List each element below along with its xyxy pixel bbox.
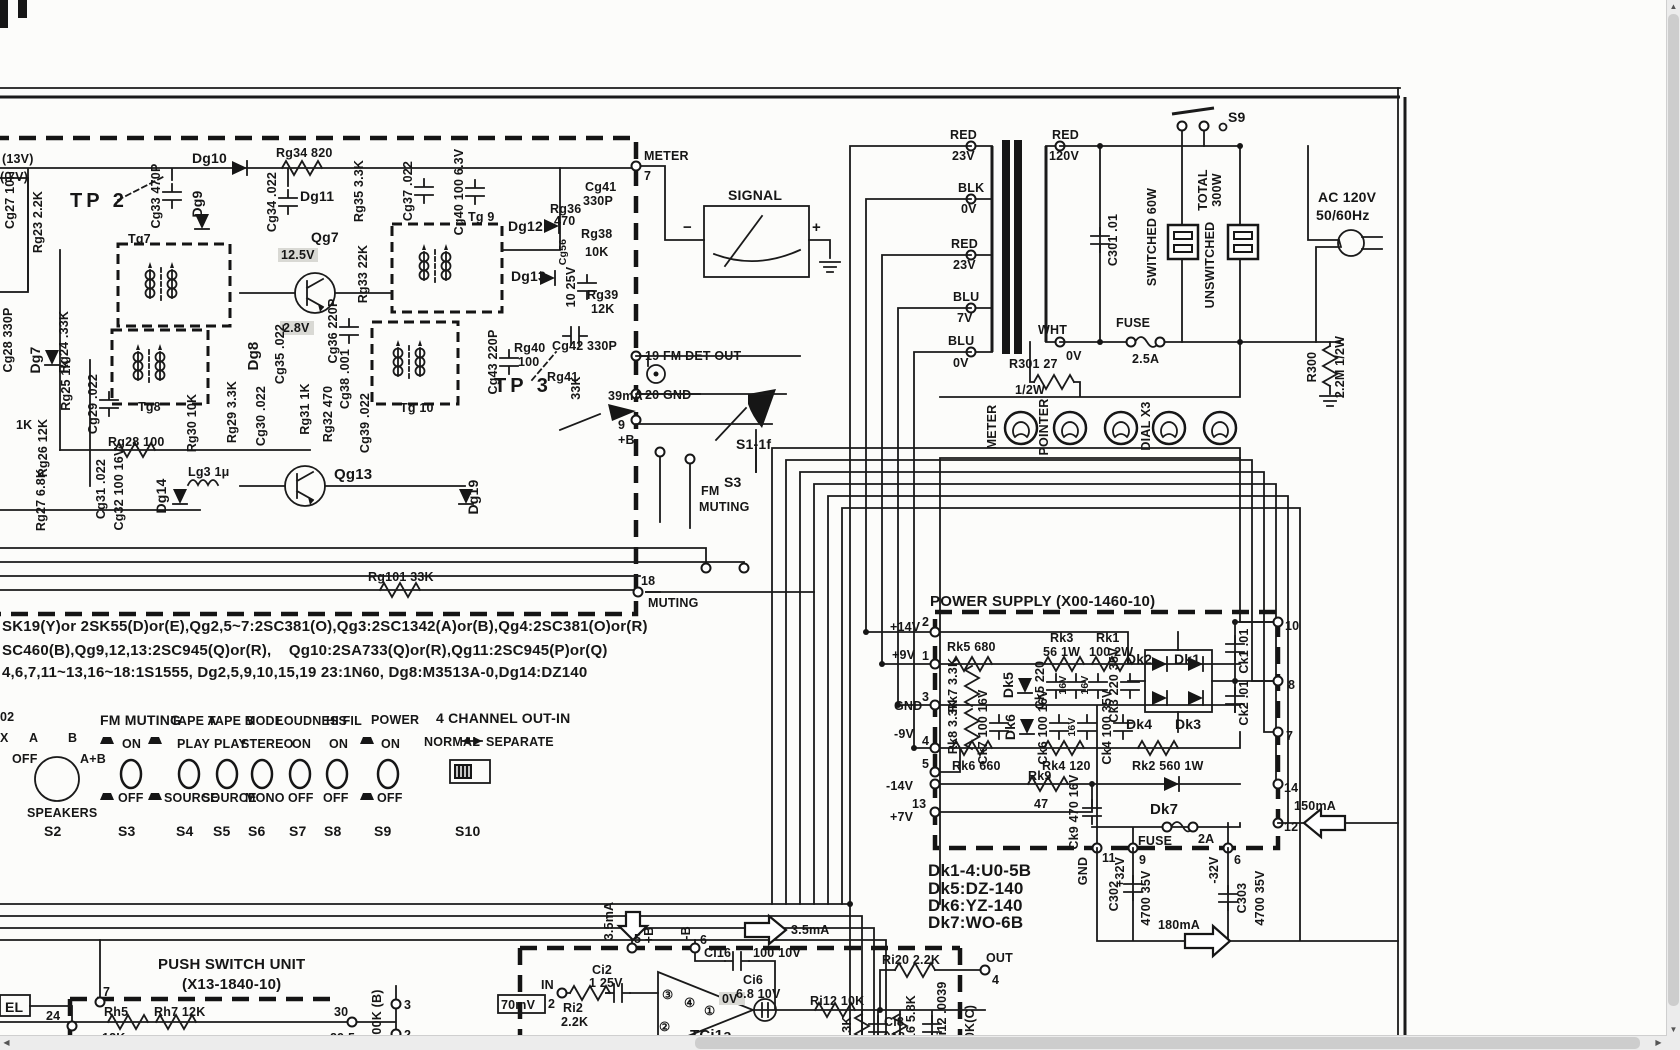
lbl-minus-b: -B (679, 926, 693, 940)
knob-hifil[interactable] (327, 760, 347, 788)
knob-power[interactable] (378, 760, 398, 788)
lbl-rk1a: Rk1 (1096, 631, 1120, 645)
lamp-dial2 (1153, 412, 1185, 444)
lbl-cg29: Cg29 .022 (86, 374, 100, 434)
lbl-oppin2: ② (659, 1020, 670, 1034)
lbl-ab: A+B (80, 752, 106, 766)
lbl-el: EL (5, 999, 24, 1015)
lbl-pin8: 8 (1288, 678, 1295, 692)
psu-pin5 (931, 768, 940, 777)
lbl-7v: 7V (957, 311, 973, 325)
lbl-push-sub: (X13-1840-10) (182, 976, 281, 993)
lbl-pin7: 7 (644, 169, 651, 183)
lbl-cg40: Cg40 100 6.3V (452, 148, 466, 235)
lbl-s9: S9 (1228, 109, 1246, 125)
lbl-p9v: +9V (892, 648, 916, 662)
power-supply: POWER SUPPLY (X00-1460-10) +14V 2 +9V 1 … (886, 593, 1299, 887)
lbl-p7v: +7V (890, 810, 914, 824)
transistor-qg13 (285, 466, 325, 506)
parts-line3: 4,6,7,11~13,16~18:1S1555, Dg2,5,9,10,15,… (2, 664, 587, 681)
lbl-tapea-play: PLAY (177, 737, 210, 751)
terminal (686, 455, 695, 464)
vertical-scrollbar[interactable]: ▲ ▼ (1666, 0, 1680, 1050)
lbl-signal: SIGNAL (728, 187, 782, 203)
lbl-ck9: Ck9 470 16V (1067, 774, 1081, 850)
diode-dk5 (1018, 678, 1032, 693)
ac-plug-icon (1338, 230, 1382, 256)
capacitor-symbol (466, 180, 484, 204)
lbl-s5: S5 (213, 823, 231, 839)
lbl-cg38: Cg38 .001 (338, 349, 352, 409)
lbl-meter-minus: − (683, 219, 692, 236)
button-marker (148, 793, 162, 800)
lbl-rh7: Rh7 12K (154, 1005, 205, 1019)
lbl-s3-muting: MUTING (699, 500, 750, 514)
knob-tapea[interactable] (179, 760, 199, 788)
lamp-meter (1005, 412, 1037, 444)
lbl-300w: 300W (1210, 173, 1224, 206)
coax-jack-fm-det (647, 365, 665, 383)
lbl-pin4: 4 (922, 734, 929, 748)
lbl-cg56: Cg56 (557, 239, 569, 265)
lbl-ri20: Ri20 2.2K (882, 953, 940, 967)
push-pin3 (392, 1000, 401, 1009)
lbl-hifil: HI FIL (326, 714, 362, 728)
lbl-pin9: 9 (1139, 853, 1146, 867)
lbl-n9v: -9V (894, 727, 915, 741)
lbl-n14v: -14V (886, 779, 914, 793)
lbl-pin3: 3 (922, 690, 929, 704)
lbl-s2: S2 (44, 823, 62, 839)
lbl-loud-on: ON (292, 737, 311, 751)
lbl-power-on: ON (381, 737, 400, 751)
lbl-pin3b: 3 (404, 998, 411, 1012)
lbl-unswitched: UNSWITCHED (1203, 222, 1217, 309)
lbl-tg8: Tg8 (138, 400, 161, 414)
lbl-plus-b: +B (618, 433, 635, 447)
lbl-lamp-dial: DIAL X3 (1139, 401, 1153, 450)
lbl-dg19: Dg19 (465, 479, 481, 514)
lbl-s6: S6 (248, 823, 266, 839)
lbl-r300v: 2.2M 1/2W (1333, 336, 1347, 398)
lbl-13v: (13V) (2, 152, 34, 166)
tone-pin-out (981, 966, 990, 975)
switch-s9 (1172, 108, 1227, 131)
lbl-s8: S8 (324, 823, 342, 839)
lbl-tp3: TP 3 (494, 375, 552, 397)
lbl-cg41b: 330P (583, 194, 613, 208)
lbl-dg13: Dg13 (511, 268, 546, 284)
lbl-s3-fm: FM (701, 484, 719, 498)
lbl-gnd: GND (894, 699, 922, 713)
lbl-dg7: Dg7 (27, 346, 43, 373)
push-switch-unit: PUSH SWITCH UNIT (X13-1840-10) EL 24 7 R… (0, 940, 411, 1050)
lbl-rg32: Rg32 470 (321, 386, 335, 443)
vertical-scroll-thumb[interactable] (1668, 14, 1679, 1006)
lbl-cg43: Cg43 220P (486, 329, 500, 394)
lbl-c303v: 4700 35V (1253, 870, 1267, 926)
lbl-pin18: 18 (641, 574, 655, 588)
lbl-rk9a: Rk9 (1028, 769, 1052, 783)
lbl-switched-60w: SWITCHED 60W (1145, 188, 1159, 286)
if-unit-labels: (13V) (.7V) TP 2 TP 3 Cg27 10P Rg23 2.2K… (0, 146, 771, 610)
lbl-rg26: Rg26 12K (36, 419, 50, 478)
lbl-meter-plus: + (812, 219, 821, 236)
lbl-180ma: 180mA (1158, 918, 1200, 932)
lbl-ck4: Ck4 100 35V (1100, 689, 1114, 765)
diode-icon (232, 161, 247, 175)
lbl-cg27: Cg27 10P (3, 171, 17, 229)
diode-dk6 (1020, 719, 1034, 734)
lbl-70mv: 70mV (501, 998, 536, 1012)
lbl-dg9: Dg9 (189, 190, 205, 217)
lbl-s10: S10 (455, 823, 481, 839)
lbl-r301: R301 27 (1009, 357, 1058, 371)
if-transformer-coil (146, 262, 177, 300)
coil-lg3 (188, 480, 218, 485)
lbl-s3b: S3 (118, 823, 136, 839)
lbl-dk5: Dk5 (1000, 672, 1016, 698)
lbl-dg10: Dg10 (192, 150, 227, 166)
ac-line: FUSE 2.5A S9 C301 .01 SWITCHED 60W TOTAL… (1060, 108, 1382, 406)
lbl-cg34: Cg34 .022 (265, 172, 279, 232)
lbl-r301b: 1/2W (1015, 383, 1045, 397)
button-marker (360, 737, 374, 744)
lbl-ck6: Ck6 100 16V (1036, 689, 1050, 765)
scroll-down-icon[interactable]: ▼ (1667, 1023, 1680, 1036)
lbl-red3: RED (1052, 128, 1079, 142)
lamp-dial1 (1105, 412, 1137, 444)
lbl-dk6: Dk6 (1002, 714, 1018, 740)
lbl-ck7: Ck7 100 16V (976, 689, 990, 765)
lbl-pin4t: 4 (992, 973, 999, 987)
horizontal-scroll-thumb[interactable] (695, 1037, 1640, 1049)
lbl-pin9: 9 (618, 418, 625, 432)
lbl-0v-c: 0V (1066, 349, 1082, 363)
if-transformer-coil (134, 344, 165, 382)
lbl-ci16v: 100 10V (753, 946, 801, 960)
lamp-pointer (1054, 412, 1086, 444)
lbl-blk: BLK (958, 181, 984, 195)
lbl-0v-a: 0V (961, 202, 977, 216)
lbl-rh5: Rh5 (104, 1005, 128, 1019)
lbl-pin7: 7 (1286, 729, 1293, 743)
lbl-oppin3: ③ (662, 988, 673, 1002)
lbl-02: 02 (0, 710, 14, 724)
lbl-rg39b: 12K (591, 302, 615, 316)
lbl-cg30: Cg30 .022 (254, 386, 268, 446)
lbl-blu1: BLU (953, 290, 979, 304)
lbl-rg30: Rg30 10K (185, 394, 199, 453)
outlet-switched (1168, 225, 1198, 259)
lbl-cg32: Cg32 100 16V (112, 447, 126, 530)
lbl-s7: S7 (289, 823, 307, 839)
lbl-hifil-off: OFF (323, 791, 349, 805)
schematic-viewer: (13V) (.7V) TP 2 TP 3 Cg27 10P Rg23 2.2K… (0, 0, 1680, 1050)
lbl-off: OFF (12, 752, 38, 766)
capacitor-symbol (163, 184, 181, 208)
schematic-canvas: (13V) (.7V) TP 2 TP 3 Cg27 10P Rg23 2.2K… (0, 0, 1680, 1050)
lbl-pin2t: 2 (548, 997, 555, 1011)
lbl-pin2: 2 (922, 615, 929, 629)
lbl-c302v: 4700 35V (1139, 870, 1153, 926)
lbl-120v: 120V (1049, 149, 1079, 163)
lbl-s4: S4 (176, 823, 194, 839)
lbl-loud-off: OFF (288, 791, 314, 805)
lbl-ci2: Ci2 (592, 963, 612, 977)
terminal-7 (632, 162, 641, 171)
button-marker (148, 737, 162, 744)
knob-speakers[interactable] (35, 757, 79, 801)
lbl-dg14: Dg14 (153, 478, 169, 513)
arrow-150ma (1304, 809, 1345, 837)
lbl-tg7: Tg7 (128, 232, 151, 246)
lbl-tp2: TP 2 (70, 190, 128, 212)
lbl-push-title: PUSH SWITCH UNIT (158, 956, 305, 973)
lbl-33k: 33K (569, 376, 583, 400)
if-unit-wires (0, 161, 840, 597)
scroll-left-icon[interactable]: ◀ (0, 1036, 13, 1050)
lbl-rk3a: Rk3 (1050, 631, 1074, 645)
lbl-c302: C302 (1107, 881, 1121, 912)
lbl-c303: C303 (1235, 883, 1249, 914)
lbl-pin24: 24 (46, 1009, 60, 1023)
lbl-power: POWER (371, 713, 419, 727)
lbl-pin13: 13 (912, 797, 926, 811)
lbl-r300: R300 (1305, 352, 1319, 383)
lbl-dg11: Dg11 (300, 188, 334, 204)
psu-pin8 (1274, 677, 1283, 686)
button-marker (100, 737, 114, 744)
lbl-tg9: Tg 9 (468, 210, 495, 224)
lbl-rg40b: 100 (518, 355, 539, 369)
signal-meter: SIGNAL − + (683, 187, 821, 277)
lbl-b: B (68, 731, 77, 745)
lbl-separate: SEPARATE (486, 735, 554, 749)
lbl-cg31: Cg31 .022 (94, 459, 108, 519)
parts-line1: SK19(Y)or 2SK55(D)or(E),Qg2,5~7:2SC381(O… (2, 618, 648, 635)
lbl-fm-muting-title: FM MUTING (100, 712, 181, 728)
lbl-out: OUT (986, 951, 1013, 965)
lbl-rg39a: Rg39 (587, 288, 618, 302)
lbl-1025v: 10 25V (564, 266, 578, 307)
lbl-pin14: 14 (1284, 781, 1298, 795)
lbl-psu-title: POWER SUPPLY (X00-1460-10) (930, 593, 1155, 610)
lbl-rk8: Rk8 3.3K (946, 700, 960, 754)
lbl-meter-term: METER (644, 149, 689, 163)
lbl-4channel: 4 CHANNEL OUT-IN (436, 710, 570, 726)
lbl-total: TOTAL (1196, 169, 1210, 211)
lbl-ci2v: 1 25V (589, 976, 623, 990)
lbl-ci16: Ci16 (704, 946, 731, 960)
lbl-lamp-meter: METER (985, 405, 999, 450)
lbl-125v: 12.5V (281, 248, 315, 262)
psu-pin1 (931, 660, 940, 669)
lbl-ci6: Ci6 (743, 973, 763, 987)
lbl-2-5a: 2.5A (1132, 352, 1159, 366)
lbl-plus-b2: +B (642, 927, 656, 944)
lbl-gnd20: 20 GND (645, 388, 691, 402)
lbl-cg33: Cg33 470P (149, 163, 163, 228)
lbl-pin1: 1 (922, 649, 929, 663)
lbl-ac120v: AC 120V (1318, 189, 1377, 205)
lbl-hifil-on: ON (329, 737, 348, 751)
diode-dk7 (1164, 777, 1179, 791)
lamp-panel: R301 27 1/2W METER POINTER DIAL X3 (940, 342, 1240, 904)
lbl-pin6: 6 (1234, 853, 1241, 867)
scroll-right-icon[interactable]: ▶ (1652, 1036, 1665, 1050)
lbl-rg35: Rg35 3.3K (352, 160, 366, 222)
terminal (740, 564, 749, 573)
lbl-23v-b: 23V (953, 258, 976, 272)
scroll-up-icon[interactable]: ▲ (1667, 0, 1680, 13)
lbl-rg38b: 10K (585, 245, 609, 259)
lbl-ri12: Ri12 10K (810, 994, 864, 1008)
lbl-rk9b: 47 (1034, 797, 1048, 811)
lbl-power-off: OFF (377, 791, 403, 805)
tone-pin-in (558, 989, 567, 998)
lbl-muting: MUTING (648, 596, 699, 610)
lbl-ci8: Ci8 (884, 1015, 904, 1029)
tone-pin6 (691, 944, 700, 953)
lbl-cg37: Cg37 .022 (401, 161, 415, 221)
lbl-fm-on: ON (122, 737, 141, 751)
lbl-s1-1f: S1-1f (736, 436, 771, 452)
lbl-blu2: BLU (948, 334, 974, 348)
lbl-pot-b: 00K (B) (370, 989, 384, 1034)
lbl-rk2: Rk2 560 1W (1132, 759, 1203, 773)
psu-pin10 (1274, 618, 1283, 627)
outlet-unswitched (1228, 225, 1258, 259)
diode-icon (173, 489, 187, 504)
lbl-cg28: Cg28 330P (1, 307, 15, 372)
lbl-mono: MONO (245, 791, 285, 805)
lbl-ck2: Ck2 .01 (1237, 680, 1251, 725)
lbl-dk3: Dk3 (1175, 716, 1201, 732)
lbl-dk1: Dk1 (1174, 651, 1200, 667)
lbl-ri2v: 2.2K (561, 1015, 588, 1029)
lbl-rk5: Rk5 680 (947, 640, 996, 654)
lbl-rg27: Rg27 6.8K (34, 469, 48, 531)
knob-tapeb[interactable] (217, 760, 237, 788)
psu-pin7 (1274, 728, 1283, 737)
lbl-rg36b: 470 (554, 214, 575, 228)
lbl-oppin4: ④ (684, 996, 695, 1010)
lbl-cg42: Cg42 330P (552, 339, 617, 353)
lbl-pin6t: 6 (700, 933, 707, 947)
lbl-0v-b: 0V (953, 356, 969, 370)
knob-mode[interactable] (252, 760, 272, 788)
knob-loudness[interactable] (290, 760, 310, 788)
lbl-qg7: Qg7 (311, 229, 339, 245)
front-switches: 02 X A B OFF A+B SPEAKERS S2 FM MUTING O… (0, 710, 570, 839)
psu-pin-14v (931, 780, 940, 789)
lbl-dk4: Dk4 (1126, 716, 1152, 732)
fuse-2-5a (1127, 337, 1165, 347)
lbl-rg28: Rg28 100 (108, 435, 165, 449)
lamp-dial3 (1204, 412, 1236, 444)
lbl-dk-note1: Dk1-4:U0-5B (928, 861, 1031, 880)
lbl-rk6: Rk6 660 (952, 759, 1001, 773)
lbl-pin30: 30 (334, 1005, 348, 1019)
lbl-ri2: Ri2 (563, 1001, 583, 1015)
lbl-16v-a: 16V (1057, 675, 1069, 694)
lbl-x: X (0, 731, 9, 745)
lbl-rg34: Rg34 820 (276, 146, 333, 160)
push-pin30 (348, 1018, 357, 1027)
lbl-23v-a: 23V (952, 149, 975, 163)
horizontal-scrollbar[interactable]: ◀ ▶ (0, 1035, 1667, 1050)
terminal (656, 448, 665, 457)
psu-pin3 (931, 701, 940, 710)
lbl-cg39: Cg39 .022 (358, 393, 372, 453)
if-transformer-coil (420, 244, 451, 282)
lbl-ci6v: 6.8 10V (736, 987, 781, 1001)
connector-s10-icon[interactable] (450, 760, 490, 783)
parts-note: SK19(Y)or 2SK55(D)or(E),Qg2,5~7:2SC381(O… (2, 618, 648, 681)
lbl-rg33: Rg33 22K (356, 245, 370, 304)
lbl-rg31: Rg31 1K (298, 383, 312, 434)
push-pin24 (68, 1022, 77, 1031)
psu-pin13 (931, 808, 940, 817)
lbl-2a: 2A (1198, 832, 1214, 846)
capacitor-ck3 (1121, 674, 1139, 698)
lbl-pin5: 5 (922, 757, 929, 771)
lbl-red2: RED (951, 237, 978, 251)
capacitor-symbol (415, 179, 433, 203)
scrollbar-corner (1667, 1036, 1680, 1050)
lbl-1k: 1K (16, 418, 32, 432)
terminal (702, 564, 711, 573)
lbl-tg10: Tg 10 (400, 401, 434, 415)
capacitor-symbol (340, 319, 358, 343)
lbl-150ma: 150mA (1294, 799, 1336, 813)
lbl-p14v: +14V (890, 620, 921, 634)
lbl-ck1: Ck1 .01 (1237, 628, 1251, 673)
lbl-c301: C301 .01 (1106, 214, 1120, 266)
lbl-qg13: Qg13 (334, 466, 372, 483)
lbl-cg41a: Cg41 (585, 180, 616, 194)
lbl-normal: NORMAL (424, 735, 480, 749)
lbl-s9b: S9 (374, 823, 392, 839)
capacitor-16v (1078, 715, 1096, 739)
lbl-28v: 2.8V (283, 321, 310, 335)
lbl-rg29: Rg29 3.3K (225, 381, 239, 443)
psu-pin4 (931, 744, 940, 753)
lbl-dk2: Dk2 (1126, 651, 1152, 667)
lbl-pin10: 10 (1285, 619, 1299, 633)
lbl-cg35: Cg35 .022 (273, 324, 287, 384)
lbl-lamp-pointer: POINTER (1037, 399, 1051, 456)
lbl-rk3b: 56 1W (1043, 645, 1080, 659)
lbl-s3: S3 (724, 474, 742, 490)
lbl-3-5ma-v: 3.5mA (602, 902, 616, 941)
lbl-rg25: Rg25 1K (59, 359, 73, 410)
lbl-50-60hz: 50/60Hz (1316, 207, 1370, 223)
lbl-speakers: SPEAKERS (27, 806, 97, 820)
if-transformer-coil (394, 340, 425, 378)
knob-fm-muting[interactable] (121, 760, 141, 788)
lbl-dg12: Dg12 (508, 218, 543, 234)
lbl-oppin1: ① (704, 1004, 715, 1018)
capacitor-symbol (279, 190, 297, 214)
lbl-39ma: 39mA (608, 389, 643, 403)
lbl-dk7: Dk7 (1150, 801, 1178, 818)
lbl-rg101: Rg101 33K (368, 570, 434, 584)
lbl-in: IN (541, 978, 554, 992)
lbl-a: A (29, 731, 38, 745)
lbl-rg38a: Rg38 (581, 227, 612, 241)
